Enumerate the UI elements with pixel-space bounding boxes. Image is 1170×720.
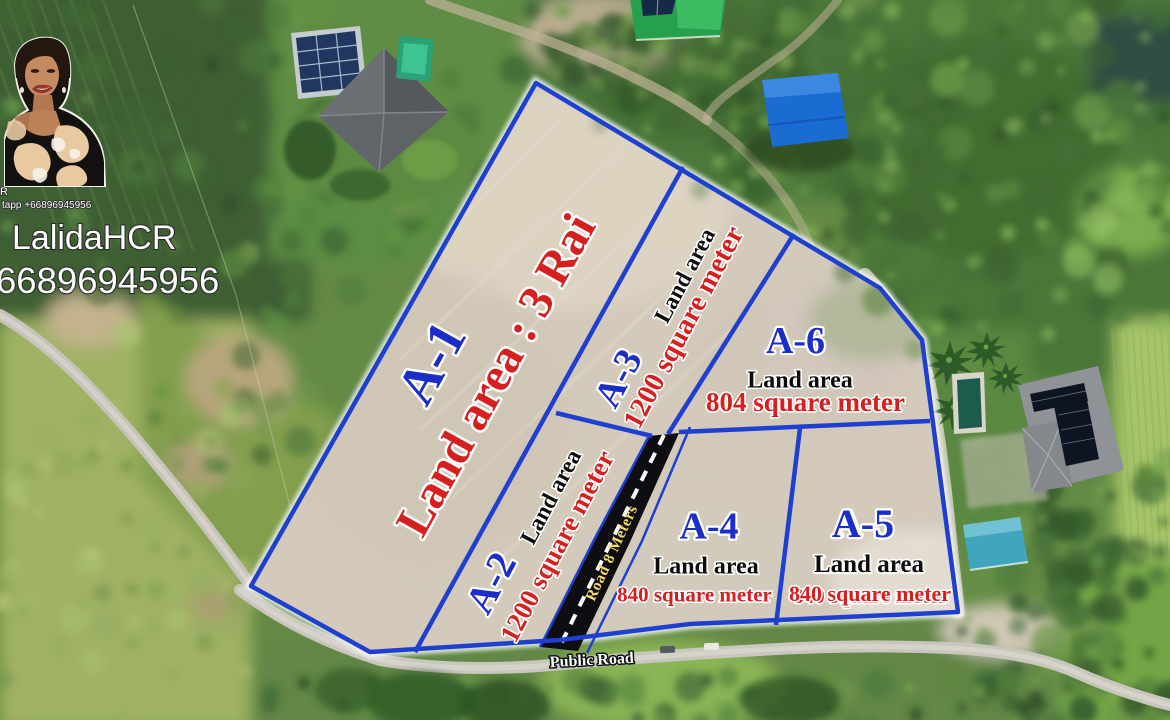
svg-text:A-4: A-4 — [679, 506, 738, 548]
svg-text:804 square meter: 804 square meter — [706, 387, 905, 417]
svg-text:R: R — [0, 186, 8, 198]
svg-text:840 square meter: 840 square meter — [617, 583, 772, 607]
svg-text:66896945956: 66896945956 — [0, 260, 219, 301]
svg-text:LalidaHCR: LalidaHCR — [12, 219, 176, 257]
svg-text:Land area: Land area — [814, 551, 924, 578]
svg-text:Land area: Land area — [653, 554, 759, 580]
svg-text:A-6: A-6 — [766, 320, 825, 362]
svg-text:A-5: A-5 — [832, 501, 894, 546]
svg-text:840 square meter: 840 square meter — [789, 581, 951, 606]
svg-text:tapp +66896945956: tapp +66896945956 — [2, 200, 92, 211]
